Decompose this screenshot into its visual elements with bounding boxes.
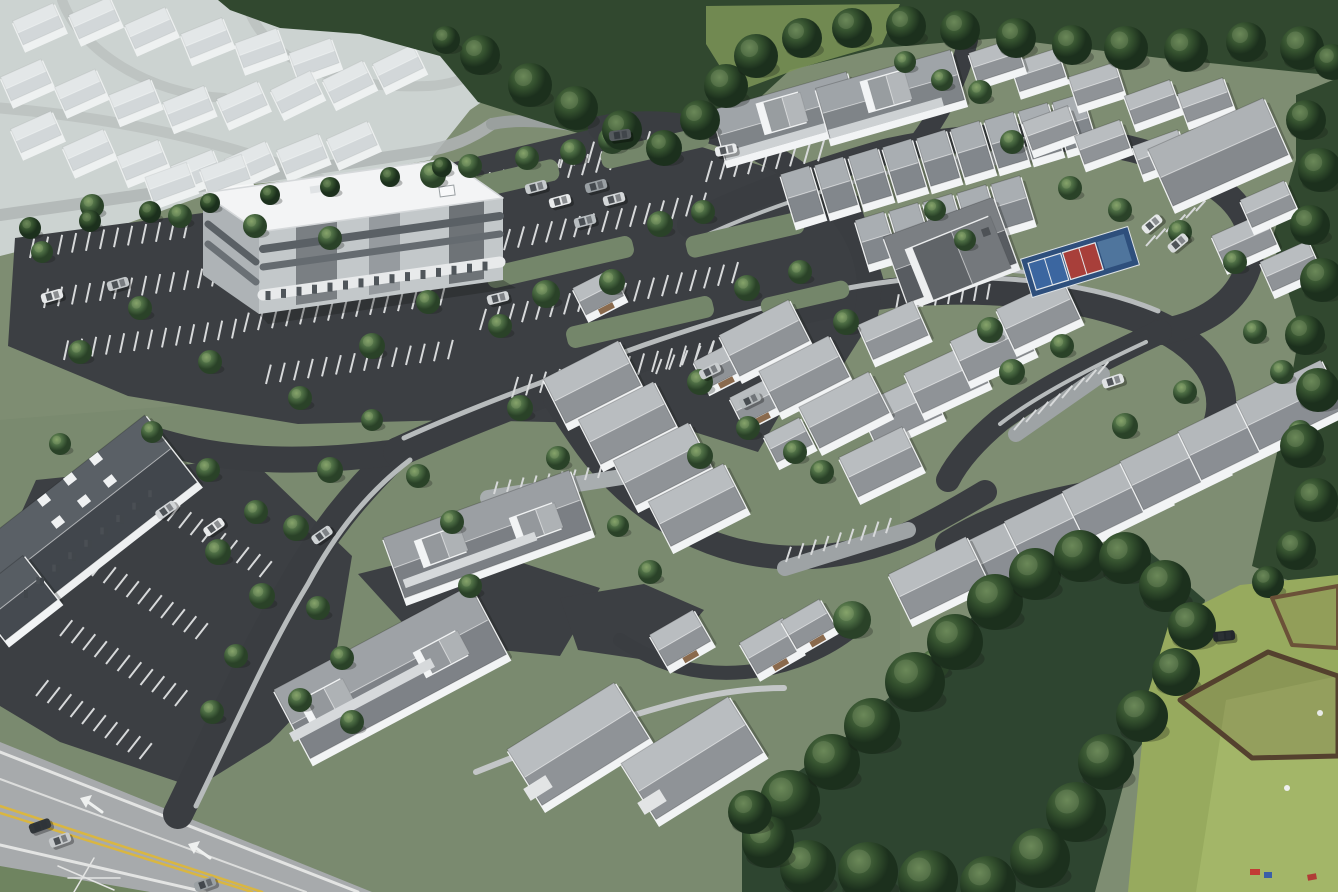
ball	[1284, 785, 1290, 791]
ball	[1317, 710, 1323, 716]
aerial-rendering-stage	[0, 0, 1338, 892]
aerial-site-plan-rendering	[0, 0, 1338, 892]
play-toy	[1250, 869, 1260, 875]
play-toy	[1264, 872, 1272, 878]
car	[1213, 630, 1238, 645]
